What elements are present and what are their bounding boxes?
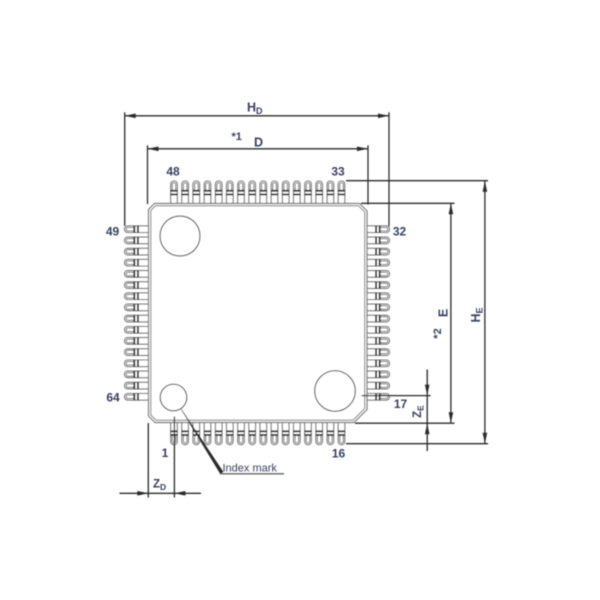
svg-text:*1: *1 — [232, 131, 242, 143]
svg-text:64: 64 — [106, 391, 120, 405]
svg-text:49: 49 — [106, 225, 120, 239]
svg-text:*2: *2 — [432, 328, 444, 338]
svg-text:1: 1 — [162, 446, 169, 460]
svg-text:E: E — [437, 309, 451, 317]
svg-text:17: 17 — [394, 397, 408, 411]
svg-text:Index mark: Index mark — [223, 463, 278, 475]
svg-text:D: D — [254, 136, 263, 150]
svg-text:16: 16 — [332, 447, 346, 461]
svg-text:32: 32 — [393, 225, 407, 239]
svg-text:48: 48 — [166, 165, 180, 179]
svg-text:33: 33 — [331, 165, 345, 179]
